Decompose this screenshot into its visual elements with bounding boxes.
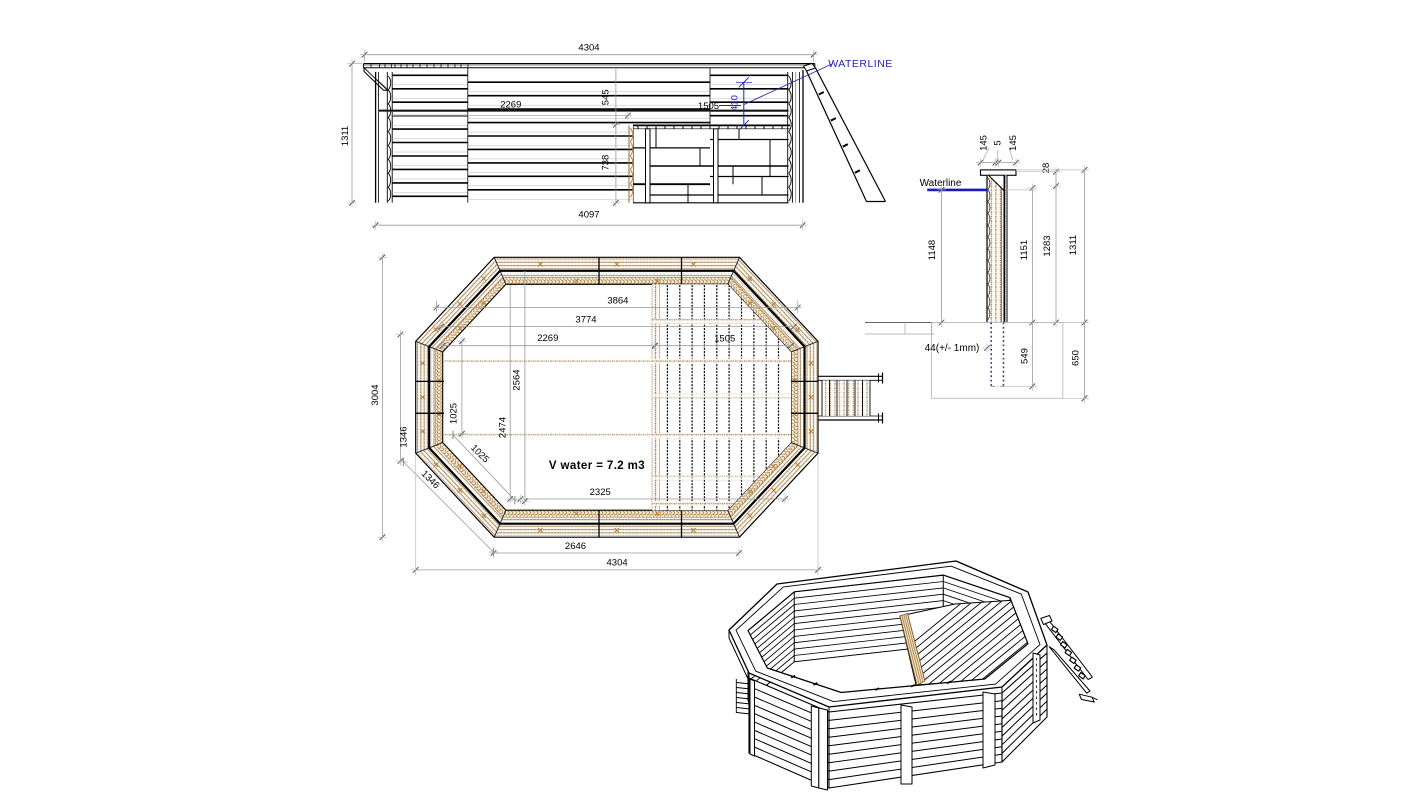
svg-text:1151: 1151 xyxy=(1019,240,1030,260)
svg-text:2269: 2269 xyxy=(500,100,521,111)
svg-text:WATERLINE: WATERLINE xyxy=(828,58,893,70)
svg-text:145: 145 xyxy=(979,135,990,151)
svg-text:1505: 1505 xyxy=(698,101,719,112)
svg-text:2474: 2474 xyxy=(498,417,509,438)
svg-text:4304: 4304 xyxy=(607,557,628,568)
svg-text:1025: 1025 xyxy=(448,403,459,424)
svg-text:44(+/- 1mm): 44(+/- 1mm) xyxy=(925,343,980,354)
svg-text:Waterline: Waterline xyxy=(920,178,962,189)
svg-text:545: 545 xyxy=(601,89,612,105)
svg-text:1148: 1148 xyxy=(927,240,938,260)
svg-text:1346: 1346 xyxy=(399,426,410,447)
svg-text:V water = 7.2 m3: V water = 7.2 m3 xyxy=(549,460,645,472)
svg-text:3004: 3004 xyxy=(370,384,381,405)
svg-text:1311: 1311 xyxy=(340,126,351,146)
svg-text:145: 145 xyxy=(1008,135,1019,151)
svg-text:3864: 3864 xyxy=(607,296,628,307)
svg-text:4097: 4097 xyxy=(578,210,599,221)
svg-text:738: 738 xyxy=(601,155,612,171)
svg-text:549: 549 xyxy=(1020,348,1031,364)
svg-text:5: 5 xyxy=(992,140,1003,145)
svg-text:410: 410 xyxy=(730,95,741,111)
svg-text:3774: 3774 xyxy=(575,315,596,326)
svg-text:4304: 4304 xyxy=(578,43,599,54)
svg-text:2269: 2269 xyxy=(537,333,558,344)
svg-text:650: 650 xyxy=(1070,350,1081,366)
svg-text:1505: 1505 xyxy=(714,334,735,345)
svg-text:2325: 2325 xyxy=(590,487,611,498)
svg-text:2564: 2564 xyxy=(511,369,522,390)
svg-text:1311: 1311 xyxy=(1068,235,1079,255)
svg-text:2646: 2646 xyxy=(565,541,586,552)
svg-text:1283: 1283 xyxy=(1042,235,1053,256)
